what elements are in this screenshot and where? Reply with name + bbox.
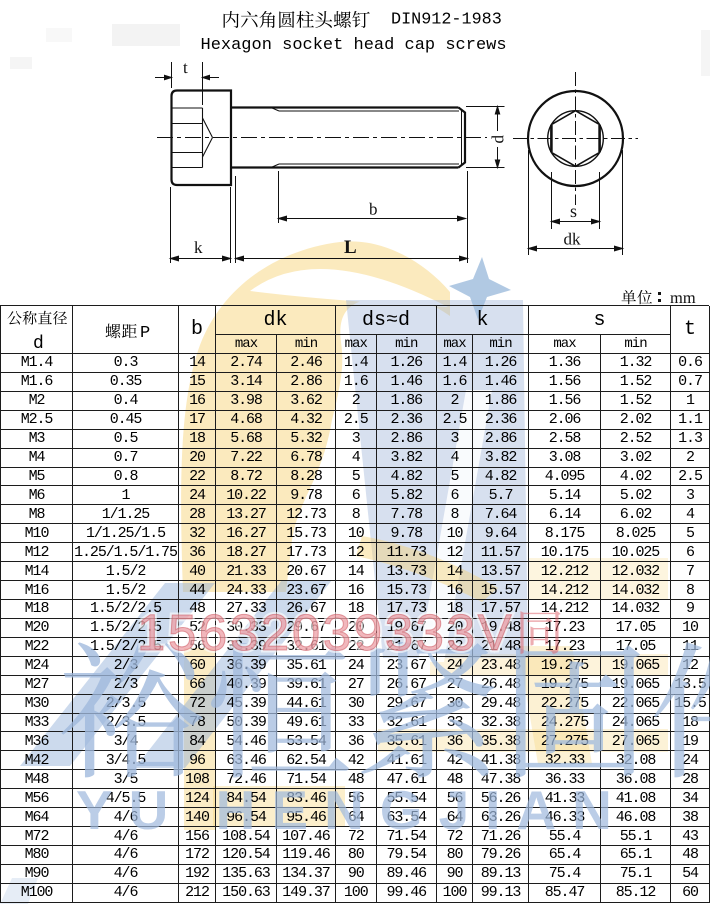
svg-text:15632039333V: 15632039333V [137, 604, 514, 661]
svg-text:YU HENGJIAN: YU HENGJIAN [76, 779, 628, 841]
